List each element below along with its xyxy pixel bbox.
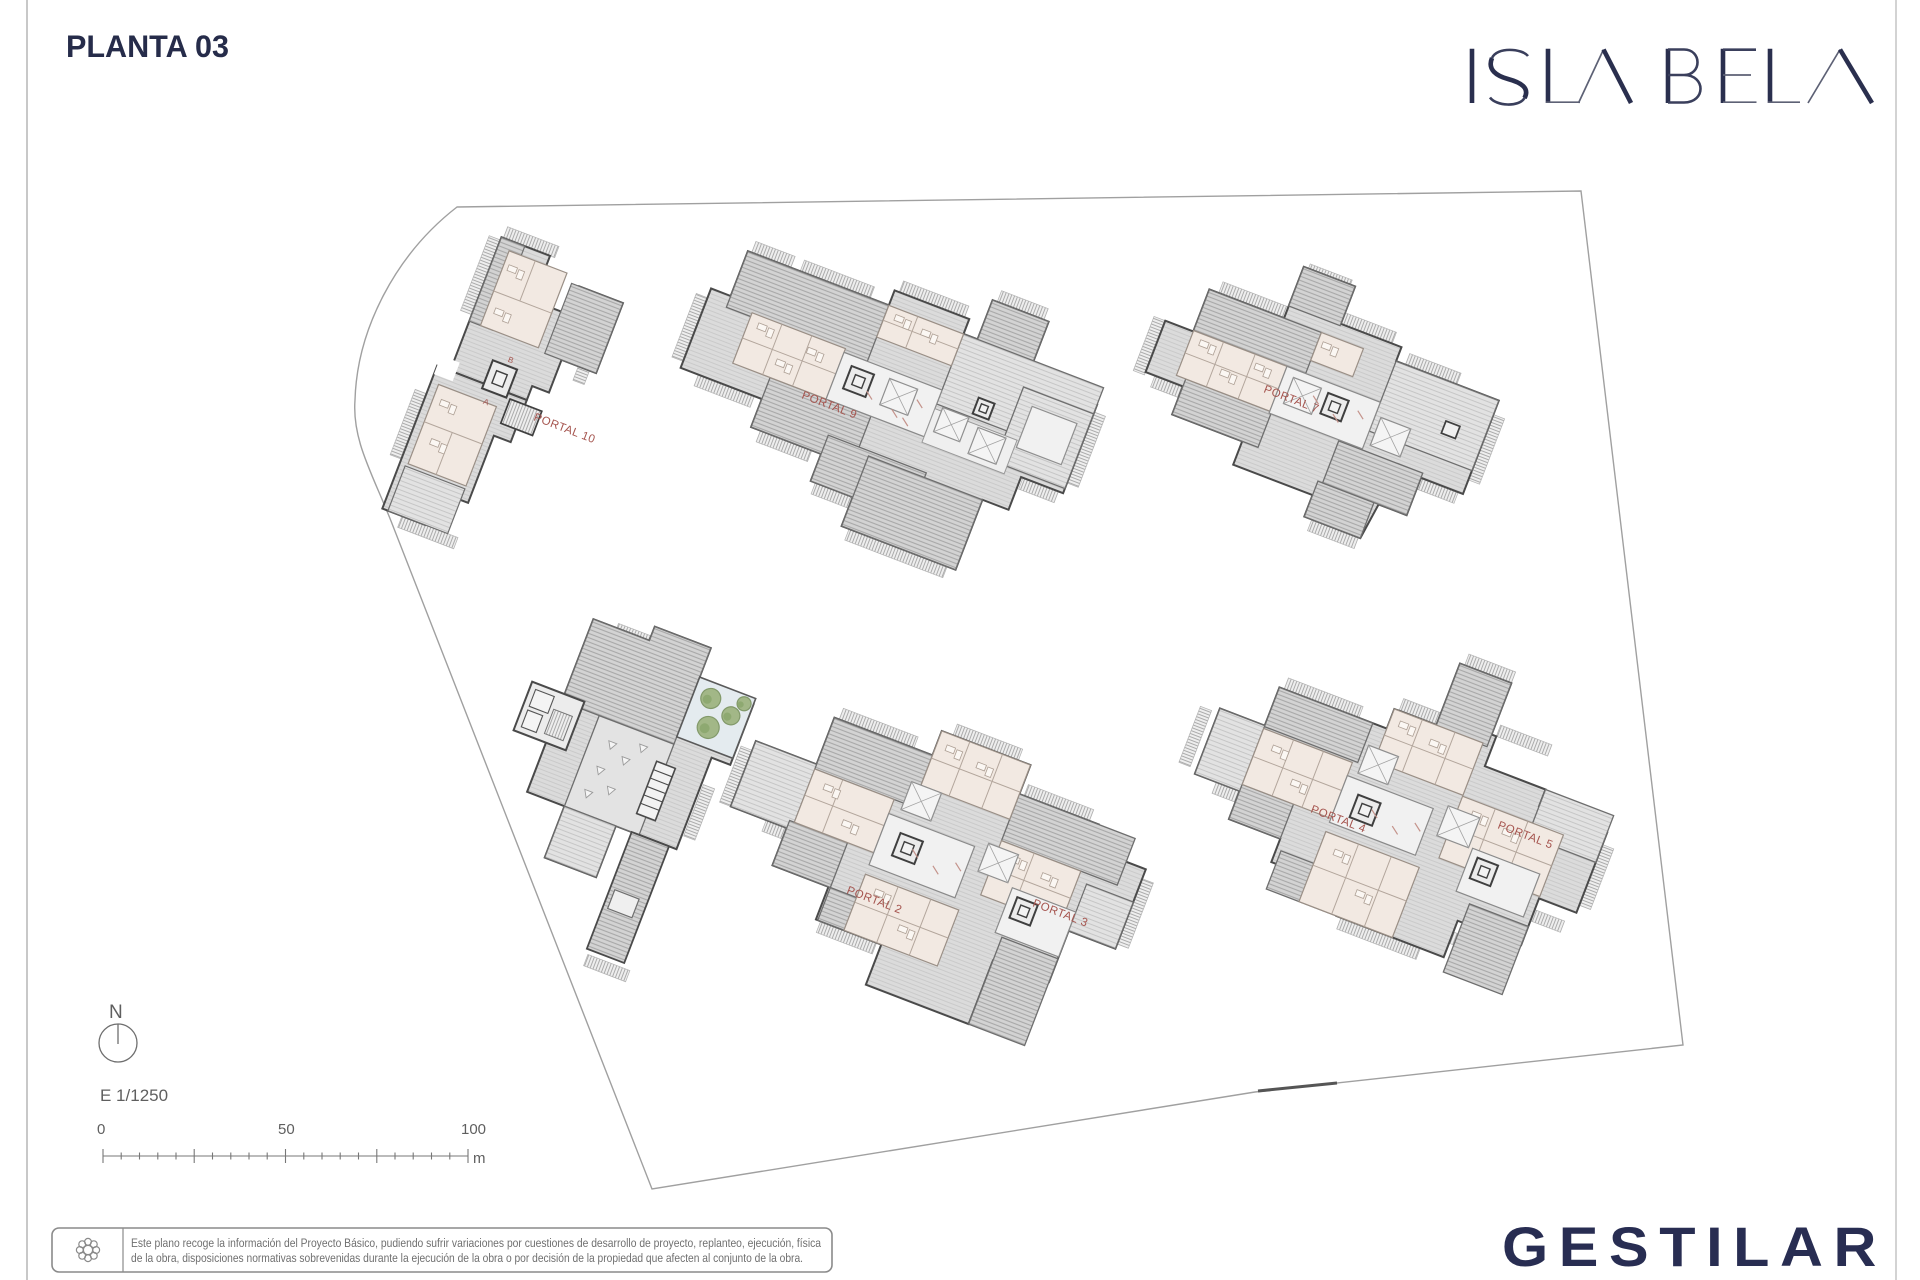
svg-text:0: 0 bbox=[97, 1121, 105, 1138]
svg-text:E 1/1250: E 1/1250 bbox=[100, 1086, 168, 1105]
svg-text:PLANTA 03: PLANTA 03 bbox=[66, 28, 229, 64]
svg-text:N: N bbox=[109, 1002, 123, 1023]
svg-text:PORTAL 10: PORTAL 10 bbox=[532, 412, 597, 447]
svg-text:100: 100 bbox=[461, 1121, 486, 1138]
svg-text:Este plano recoge la informaci: Este plano recoge la información del Pro… bbox=[131, 1236, 821, 1250]
svg-text:m: m bbox=[473, 1150, 486, 1167]
svg-text:50: 50 bbox=[278, 1121, 295, 1138]
svg-text:GESTILAR: GESTILAR bbox=[1502, 1215, 1887, 1278]
svg-text:de la obra, disposiciones norm: de la obra, disposiciones normativas sob… bbox=[131, 1251, 803, 1265]
